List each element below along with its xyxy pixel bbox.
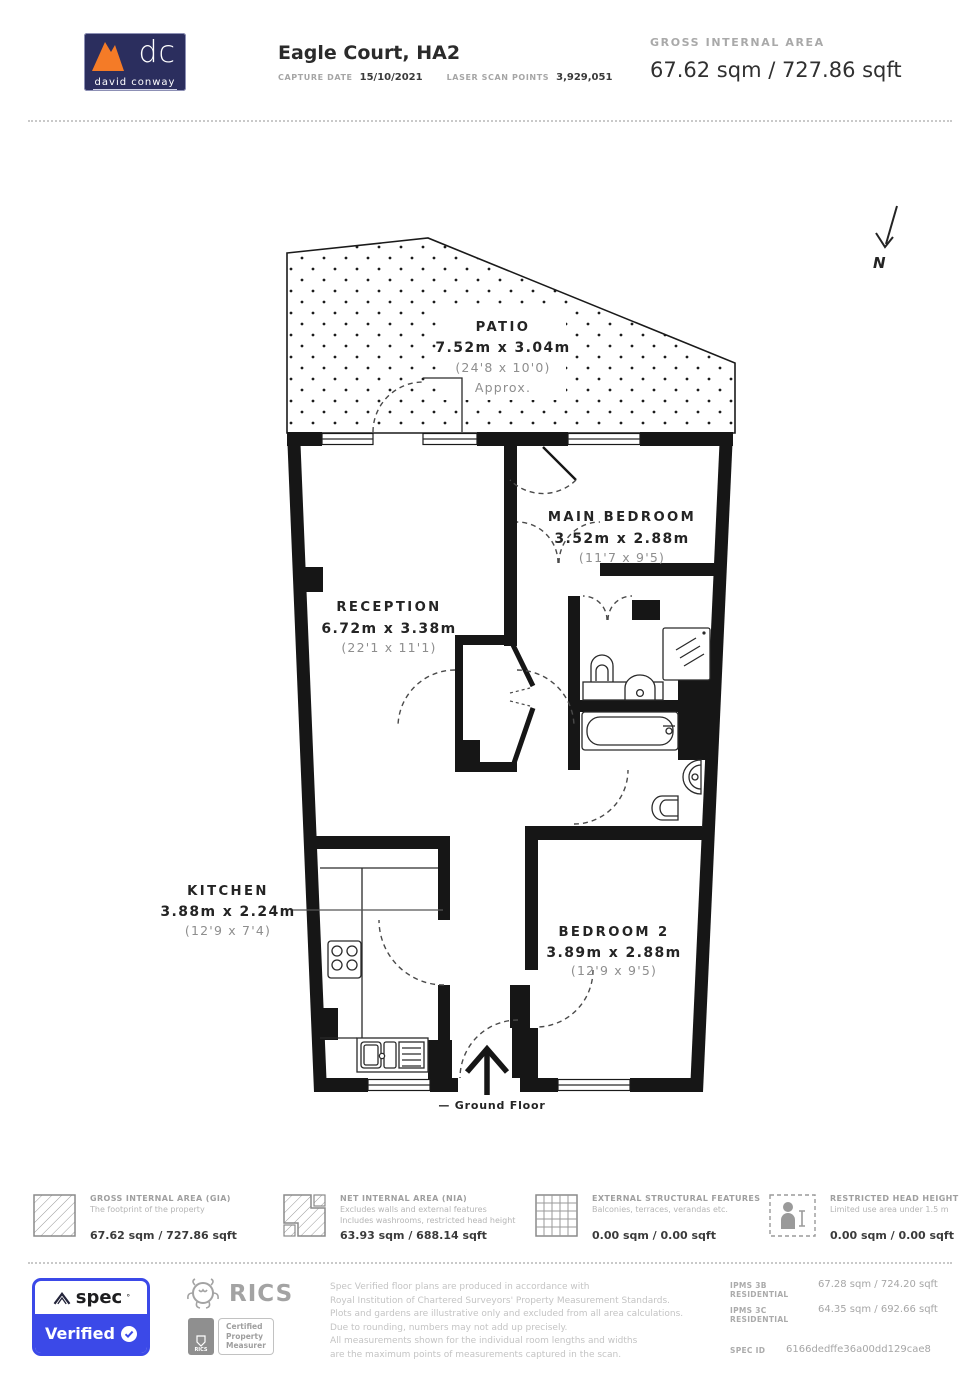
- gross-internal-area-value: 67.62 sqm / 727.86 sqft: [650, 58, 902, 82]
- floorplan-drawing: N PATIO 7.52m x 3.04m (24'8 x 10'0) Appr…: [0, 150, 980, 1180]
- logo-mountain-icon: [84, 33, 130, 77]
- entrance-arrow-icon: [467, 1049, 507, 1095]
- spec-verified-badge: spec° Verified: [32, 1278, 150, 1356]
- legend-title: RESTRICTED HEAD HEIGHT: [830, 1194, 980, 1203]
- gross-internal-area-label: GROSS INTERNAL AREA: [650, 36, 825, 49]
- legend-gia: GROSS INTERNAL AREA (GIA) The footprint …: [33, 1194, 295, 1242]
- ipms-3c-value: 64.35 sqm / 692.66 sqft: [818, 1304, 938, 1324]
- agency-logo: dc david conway: [84, 33, 186, 91]
- patio-note: Approx.: [475, 380, 531, 395]
- reception-name: RECEPTION: [336, 600, 441, 615]
- legend-title: GROSS INTERNAL AREA (GIA): [90, 1194, 295, 1203]
- reception-imperial: (22'1 x 11'1): [341, 640, 436, 655]
- main-bedroom-imperial: (11'7 x 9'5): [579, 550, 665, 565]
- laser-scan-value: 3,929,051: [556, 72, 612, 83]
- legend-title: NET INTERNAL AREA (NIA): [340, 1194, 545, 1203]
- spec-id-label: SPEC ID: [730, 1344, 786, 1355]
- patio-metric: 7.52m x 3.04m: [435, 340, 570, 356]
- main-bedroom-name: MAIN BEDROOM: [548, 510, 696, 525]
- ipms-values: IPMS 3B RESIDENTIAL 67.28 sqm / 724.20 s…: [730, 1279, 938, 1329]
- patio-area: [287, 238, 735, 433]
- legend-desc: Balconies, terraces, verandas etc.: [592, 1205, 797, 1216]
- ground-floor-label: — Ground Floor: [438, 1099, 545, 1112]
- door-leaf: [543, 447, 576, 480]
- bedroom2-metric: 3.89m x 2.88m: [546, 945, 681, 961]
- toilet-icon: [591, 655, 613, 683]
- spec-house-icon: [52, 1290, 72, 1306]
- legend-title: EXTERNAL STRUCTURAL FEATURES: [592, 1194, 797, 1203]
- reception-metric: 6.72m x 3.38m: [321, 621, 456, 637]
- spec-verified-label: Verified: [45, 1324, 115, 1343]
- page-title: Eagle Court, HA2: [278, 42, 460, 64]
- patio-imperial: (24'8 x 10'0): [455, 360, 550, 375]
- legend-desc: The footprint of the property: [90, 1205, 295, 1216]
- kitchen-metric: 3.88m x 2.24m: [160, 904, 295, 920]
- disclaimer-text: Spec Verified floor plans are produced i…: [330, 1281, 700, 1363]
- legend-restricted: RESTRICTED HEAD HEIGHT Limited use area …: [769, 1194, 980, 1242]
- kitchen-fixtures: [320, 868, 438, 1072]
- laser-scan-label: LASER SCAN POINTS: [447, 73, 550, 82]
- divider-top: [28, 120, 952, 122]
- certified-property-measurer-badge: Certified Property Measurer: [218, 1318, 274, 1355]
- rics-block: RICS RICS Certified Property Measurer: [185, 1277, 293, 1355]
- nia-blocks-icon: [283, 1194, 327, 1238]
- logo-monogram: dc: [138, 35, 176, 70]
- capture-meta: CAPTURE DATE15/10/2021LASER SCAN POINTS3…: [278, 72, 636, 83]
- ipms-3b-label: IPMS 3B RESIDENTIAL: [730, 1279, 818, 1299]
- hob-icon: [328, 941, 361, 978]
- divider-bottom: [28, 1262, 952, 1264]
- kitchen-name: KITCHEN: [187, 884, 269, 899]
- legend-value: 67.62 sqm / 727.86 sqft: [90, 1229, 237, 1242]
- legend-desc: Limited use area under 1.5 m: [830, 1205, 980, 1216]
- check-icon: [121, 1326, 137, 1342]
- legend-value: 0.00 sqm / 0.00 sqft: [830, 1229, 954, 1242]
- ipms-3c-label: IPMS 3C RESIDENTIAL: [730, 1304, 818, 1324]
- restricted-height-person-icon: [769, 1194, 817, 1238]
- capture-date-label: CAPTURE DATE: [278, 73, 353, 82]
- grid-square-icon: [535, 1194, 579, 1238]
- north-arrow-icon: N: [873, 206, 897, 272]
- gia-hatched-square-icon: [33, 1194, 77, 1238]
- legend-value: 63.93 sqm / 688.14 sqft: [340, 1229, 487, 1242]
- legend-external: EXTERNAL STRUCTURAL FEATURES Balconies, …: [535, 1194, 797, 1242]
- north-label: N: [873, 254, 886, 272]
- logo-company-name: david conway: [93, 77, 178, 90]
- legend-desc: Includes washrooms, restricted head heig…: [340, 1216, 545, 1227]
- rics-wordmark: RICS: [229, 1281, 293, 1307]
- legend-desc: Excludes walls and external features: [340, 1205, 545, 1216]
- capture-date-value: 15/10/2021: [360, 72, 423, 83]
- legend-nia: NET INTERNAL AREA (NIA) Excludes walls a…: [283, 1194, 545, 1242]
- spec-brand: spec: [76, 1287, 122, 1308]
- spec-id-value: 6166dedffe36a00dd129cae8: [786, 1344, 931, 1355]
- rics-lion-icon: [185, 1277, 223, 1311]
- spec-id-row: SPEC ID 6166dedffe36a00dd129cae8: [730, 1344, 931, 1355]
- legend-value: 0.00 sqm / 0.00 sqft: [592, 1229, 716, 1242]
- spec-mark: °: [126, 1293, 130, 1302]
- main-bedroom-metric: 3.52m x 2.88m: [554, 531, 689, 547]
- patio-name: PATIO: [476, 320, 531, 335]
- bedroom2-name: BEDROOM 2: [558, 925, 669, 940]
- kitchen-imperial: (12'9 x 7'4): [185, 923, 271, 938]
- ipms-3b-value: 67.28 sqm / 724.20 sqft: [818, 1279, 938, 1299]
- bedroom2-imperial: (12'9 x 9'5): [571, 963, 657, 978]
- floorplan-page: dc david conway Eagle Court, HA2 CAPTURE…: [0, 0, 980, 1385]
- rics-mini-logo: RICS: [188, 1318, 214, 1355]
